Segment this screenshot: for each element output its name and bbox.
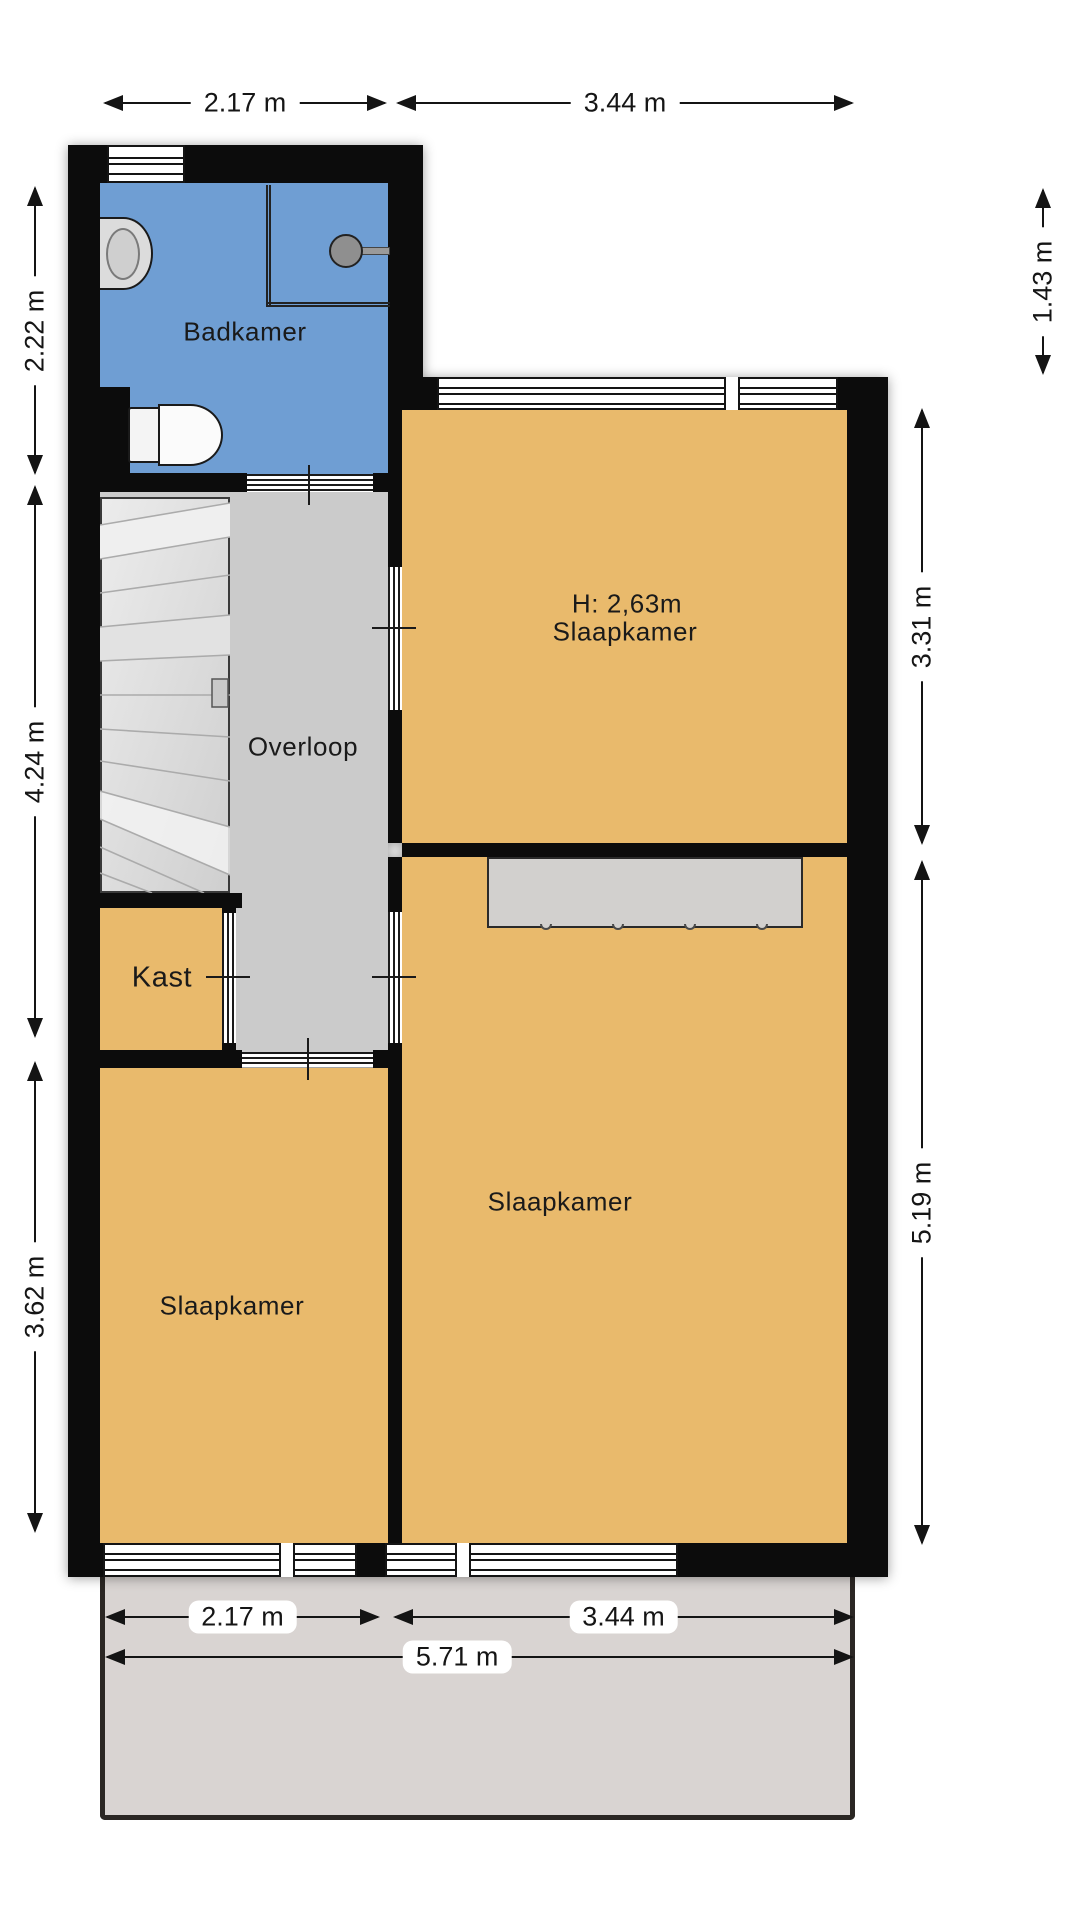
dimension-label: 3.44 m xyxy=(569,1601,678,1634)
dimension-right-bottom: 5.19 m xyxy=(921,862,923,1543)
dimension-label: 2.17 m xyxy=(188,1601,297,1634)
dimension-right-top: 1.43 m xyxy=(1042,190,1044,373)
dimension-label: 3.44 m xyxy=(571,87,680,120)
dimension-label: 5.71 m xyxy=(403,1641,512,1674)
dimension-label: 1.43 m xyxy=(1027,227,1060,336)
dimension-top-right: 3.44 m xyxy=(398,102,852,104)
dimension-left-top: 2.22 m xyxy=(34,188,36,473)
dimension-label: 4.24 m xyxy=(19,707,52,816)
dimension-top-left: 2.17 m xyxy=(105,102,385,104)
dimension-left-middle: 4.24 m xyxy=(34,487,36,1036)
dimension-label: 5.19 m xyxy=(906,1148,939,1257)
dimension-bottom-total: 5.71 m xyxy=(107,1656,852,1658)
dimension-label: 3.62 m xyxy=(19,1243,52,1352)
dimension-layer: 2.17 m 3.44 m 2.22 m 4.24 m 3.62 m 1.43 … xyxy=(0,0,1080,1920)
dimension-label: 2.17 m xyxy=(191,87,300,120)
dimension-left-bottom: 3.62 m xyxy=(34,1063,36,1531)
dimension-label: 3.31 m xyxy=(906,572,939,681)
floorplan-canvas: Badkamer Overloop Kast H: 2,63m Slaapkam… xyxy=(0,0,1080,1920)
dimension-label: 2.22 m xyxy=(19,276,52,385)
dimension-bottom-right: 3.44 m xyxy=(395,1616,852,1618)
dimension-bottom-left: 2.17 m xyxy=(107,1616,378,1618)
dimension-right-middle: 3.31 m xyxy=(921,410,923,843)
